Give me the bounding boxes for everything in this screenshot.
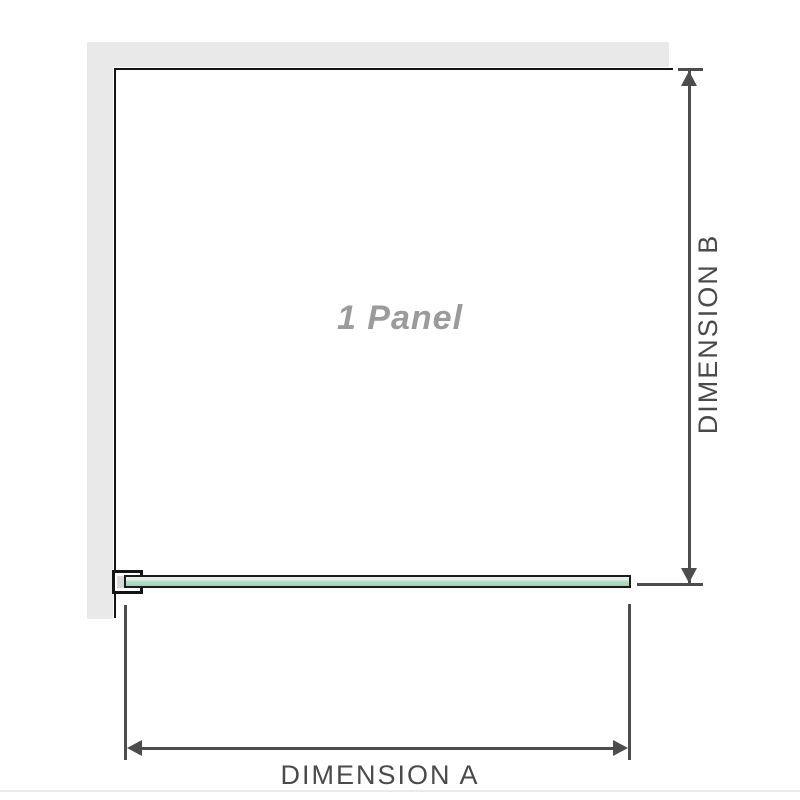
glass-panel-bar xyxy=(124,575,631,588)
dimension-b-line xyxy=(688,71,691,583)
panel-outline-left xyxy=(114,68,116,618)
dimension-a-arrowhead-right xyxy=(613,740,628,756)
wall-left-segment xyxy=(87,42,113,619)
panel-count-label: 1 Panel xyxy=(250,296,550,340)
shower-screen-diagram: 1 Panel DIMENSION B DIMENSION A xyxy=(0,0,800,800)
dimension-a-arrowhead-left xyxy=(127,740,142,756)
dimension-a-extension-left xyxy=(124,605,127,760)
dimension-a-line xyxy=(138,747,617,750)
dimension-a-extension-right xyxy=(628,604,631,760)
dimension-a-label: DIMENSION A xyxy=(180,760,580,790)
dimension-b-arrowhead-bottom xyxy=(681,568,697,583)
panel-outline-top xyxy=(114,68,673,70)
dimension-b-cap-bottom xyxy=(637,583,703,586)
wall-top-segment xyxy=(87,42,669,67)
baseline-divider xyxy=(0,790,800,792)
dimension-b-label: DIMENSION B xyxy=(693,184,723,484)
dimension-b-arrowhead-top xyxy=(681,71,697,86)
